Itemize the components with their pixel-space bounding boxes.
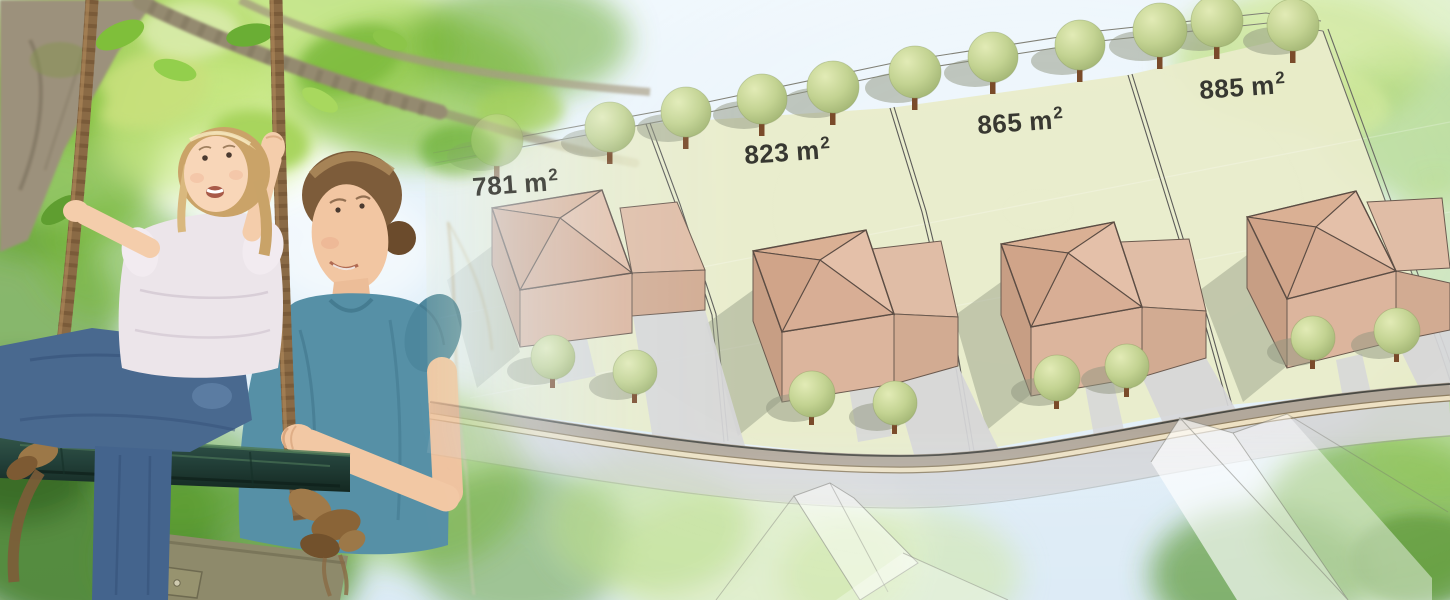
girl-jeans-leg bbox=[92, 446, 172, 600]
lot-2-area-label: 823m2 bbox=[743, 133, 831, 170]
lot-4-area-label: 885m2 bbox=[1198, 68, 1286, 105]
banner-composite: 781m2 823m2 865m2 885m2 bbox=[0, 0, 1450, 600]
lot-3-area-label: 865m2 bbox=[976, 103, 1064, 140]
real-estate-banner: 781m2 823m2 865m2 885m2 bbox=[0, 0, 1450, 600]
house-1-garage-front bbox=[632, 270, 705, 316]
lot-1-area-label: 781m2 bbox=[471, 165, 559, 202]
girl-left-hand bbox=[63, 200, 89, 222]
